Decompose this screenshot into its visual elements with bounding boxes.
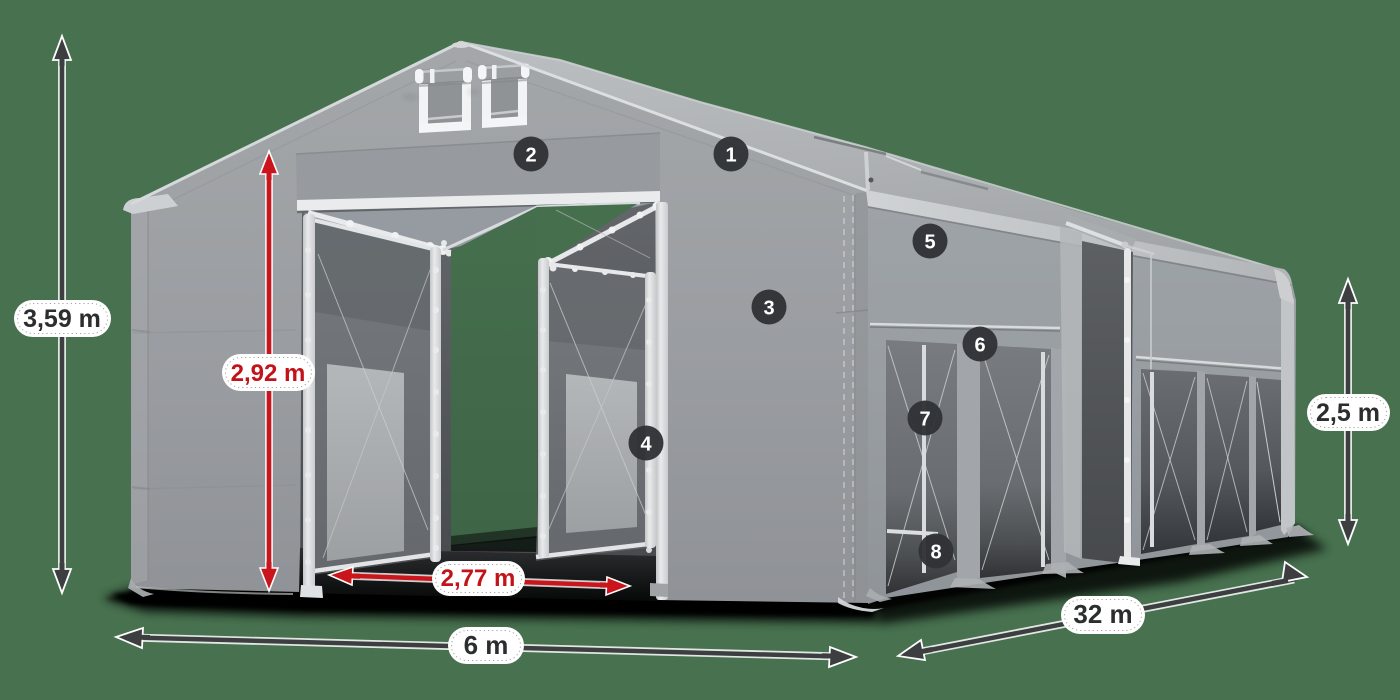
- svg-text:6: 6: [974, 335, 985, 357]
- svg-text:5: 5: [924, 232, 935, 254]
- svg-text:4: 4: [640, 434, 652, 456]
- svg-text:2,92 m: 2,92 m: [231, 360, 306, 387]
- svg-text:2,77 m: 2,77 m: [441, 565, 516, 592]
- svg-text:32 m: 32 m: [1073, 599, 1132, 629]
- svg-text:1: 1: [725, 145, 736, 167]
- svg-text:3: 3: [763, 298, 774, 320]
- svg-text:2: 2: [525, 145, 536, 167]
- svg-text:3,59 m: 3,59 m: [23, 305, 101, 333]
- svg-text:6 m: 6 m: [464, 630, 509, 660]
- svg-text:8: 8: [930, 542, 941, 564]
- svg-text:2,5 m: 2,5 m: [1316, 399, 1380, 427]
- svg-text:7: 7: [919, 409, 930, 431]
